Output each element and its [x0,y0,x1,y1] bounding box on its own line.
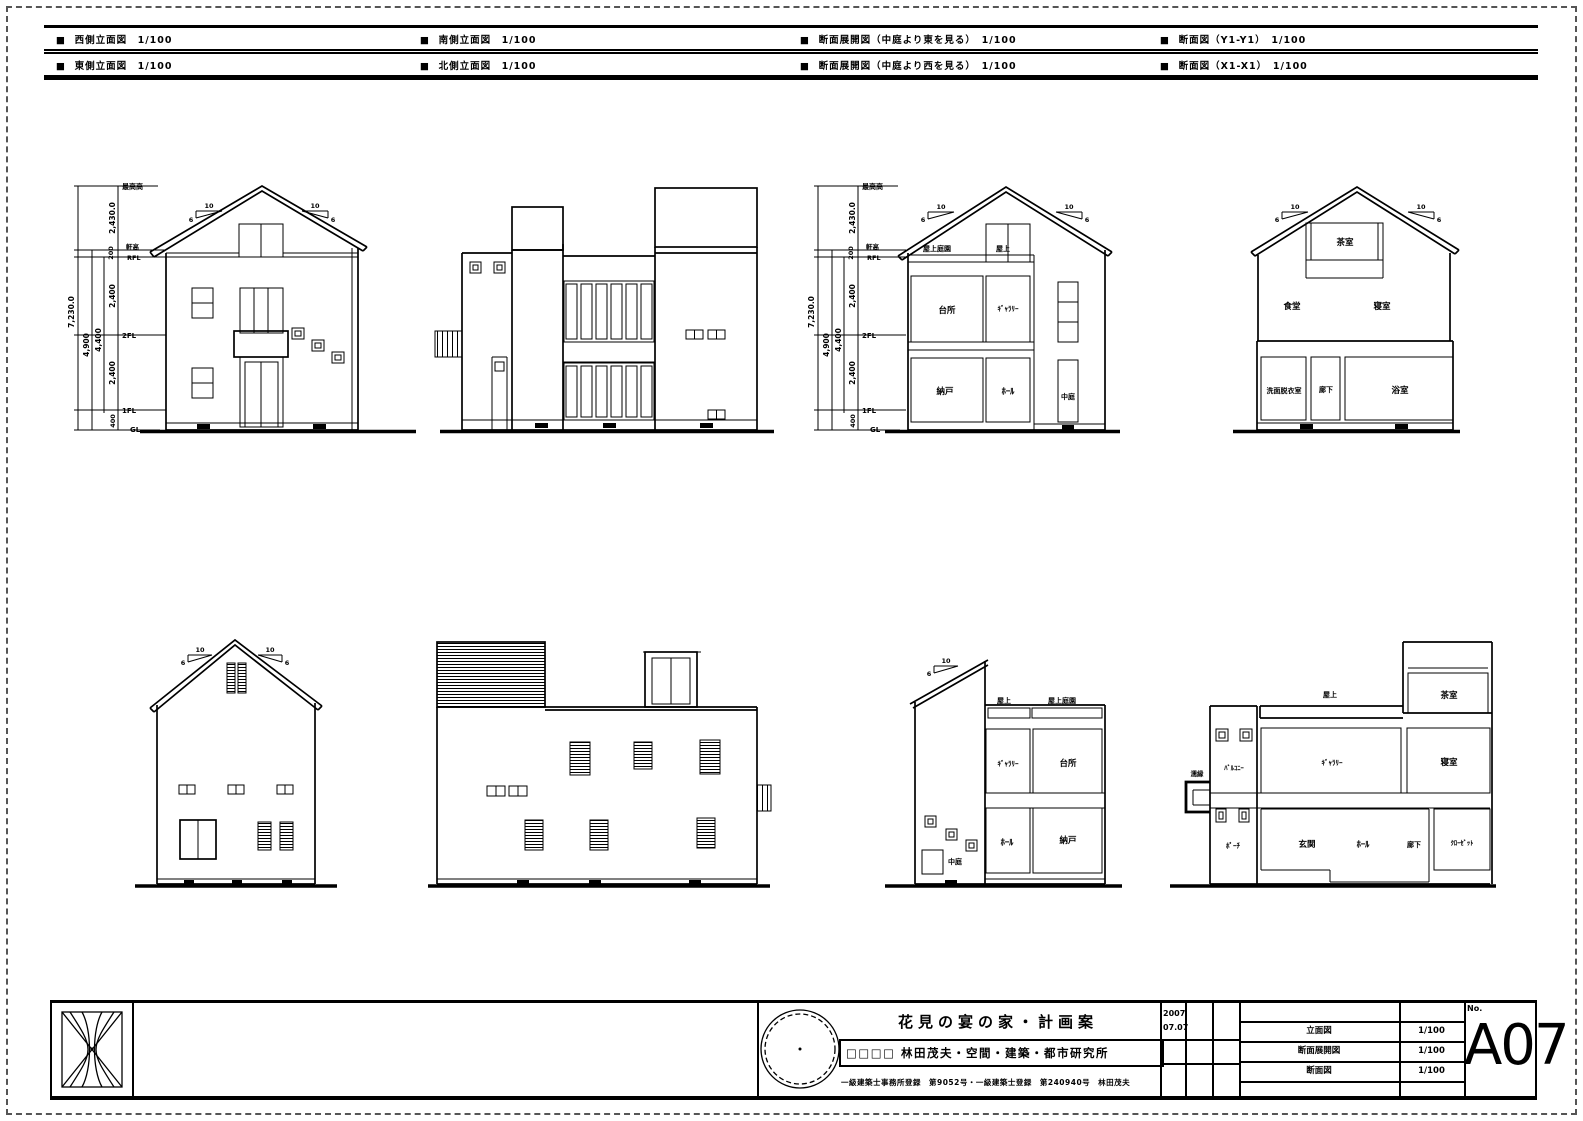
drawing-list-name: 断面展開図 [1239,1042,1399,1060]
dim-overall: 7,230.0 [67,296,76,328]
dim-seg-upper: 2,400 [108,284,117,308]
pitch-run: 10 [195,646,205,654]
dim-seg-eave: 200 [107,246,115,260]
room-label-dining: 食堂 [1283,301,1301,312]
seal-circle-icon [759,1008,841,1090]
room-label-roof: 屋上 [996,244,1010,253]
revision-grid-line [1160,1039,1239,1041]
room-label-courtyard: 中庭 [948,857,963,866]
room-label-gallery: ｷﾞｬﾗﾘｰ [998,304,1019,313]
header-label-section-dev-east: ■ 断面展開図（中庭より東を見る） 1/100 [800,32,1017,46]
pitch-rise: 6 [921,216,926,224]
room-label-tea-room: 茶室 [1439,690,1458,701]
section-west-details [922,666,1105,884]
pitch-rise: 6 [1085,216,1090,224]
dim-seg-upper: 2,400 [848,284,857,308]
room-label-roof: 屋上 [1323,690,1337,699]
date-month-day: 07.07 [1163,1023,1188,1032]
dim-seg-lower: 2,400 [848,361,857,385]
room-label-hall: ﾎｰﾙ [1001,838,1015,848]
date-year: 2007 [1163,1009,1185,1018]
sheet-number: A07 [1464,1013,1535,1078]
pitch-run: 10 [936,203,946,211]
titleblock-divider [132,1003,134,1096]
room-label-kitchen: 台所 [1059,758,1077,769]
room-label-roof-garden: 屋上庭園 [923,244,951,253]
room-label-roof-garden: 屋上庭園 [1048,696,1076,705]
dim-seg-top: 2,430.0 [848,202,857,234]
dimension-stack-section [814,186,906,430]
room-label-hall: ﾎｰﾙ [1002,387,1016,397]
level-1fl: 1FL [862,407,877,415]
house-west-elevation: 10 6 10 6 [140,186,416,432]
pitch-rise: 6 [189,216,194,224]
header-label-section-dev-west: ■ 断面展開図（中庭より西を見る） 1/100 [800,58,1017,72]
room-label-corridor: 廊下 [1407,840,1421,849]
level-gl: GL [870,426,881,434]
room-label-hall: ﾎｰﾙ [1357,840,1371,850]
pitch-run: 10 [265,646,275,654]
drawing-east-elevation: 10 6 10 6 [130,630,360,894]
revision-grid-line [1160,1063,1239,1065]
drawing-south-elevation [420,180,780,442]
drawing-list-scale: 1/100 [1399,1042,1464,1060]
level-max-height: 最高高 [122,182,143,191]
drawing-list-scale: 1/100 [1399,1062,1464,1080]
header-band-2: ■ 東側立面図 1/100 ■ 北側立面図 1/100 ■ 断面展開図（中庭より… [44,52,1538,80]
revision-grid-line [1160,1003,1162,1096]
header-label-east-elevation: ■ 東側立面図 1/100 [56,58,173,72]
header-label-south-elevation: ■ 南側立面図 1/100 [420,32,537,46]
drawing-sheet: ■ 西側立面図 1/100 ■ 南側立面図 1/100 ■ 断面展開図（中庭より… [0,0,1583,1121]
pitch-rise: 6 [285,659,290,667]
dim-inner: 4,400 [834,328,843,352]
dim-seg-lower: 2,400 [108,361,117,385]
room-label-tea-room: 茶室 [1335,237,1354,248]
level-rfl: RFL [127,254,141,262]
drawing-section-dev-east: 7,230.0 4,900 4,400 2,430.0 200 2,400 2,… [795,170,1127,445]
dim-seg-eave: 200 [847,246,855,260]
room-label-gallery: ｷﾞｬﾗﾘｰ [998,759,1019,768]
room-label-roof: 屋上 [997,696,1011,705]
cantilever-bracket [1186,782,1210,812]
drawing-list-name: 断面図 [1239,1062,1399,1080]
room-label-porch: ﾎﾟｰﾁ [1226,841,1241,850]
room-label-veranda: 濡縁 [1191,769,1205,778]
dim-seg-top: 2,430.0 [108,202,117,234]
room-label-washroom: 洗面脱衣室 [1267,386,1302,395]
south-elevation-details [435,188,757,430]
revision-grid-line [1185,1003,1187,1096]
east-elevation-outline [150,640,322,884]
level-2fl: 2FL [122,332,137,340]
revision-grid-line [1212,1003,1214,1096]
south-elevation-outline [462,244,757,430]
pitch-run: 10 [1290,203,1300,211]
level-1fl: 1FL [122,407,137,415]
room-label-balcony: ﾊﾞﾙｺﾆｰ [1223,763,1244,772]
header-band-1: ■ 西側立面図 1/100 ■ 南側立面図 1/100 ■ 断面展開図（中庭より… [44,25,1538,51]
drawing-section-x1: 屋上 茶室 ｷﾞｬﾗﾘｰ 寝室 ﾊﾞﾙｺﾆｰ 濡縁 ﾎﾟｰﾁ 玄関 ﾎｰﾙ 廊下… [1160,622,1502,894]
level-eave: 軒高 [126,242,140,251]
pitch-rise: 6 [181,659,186,667]
drawing-list-name: 立面図 [1239,1022,1399,1040]
pitch-rise: 6 [1275,216,1280,224]
pitch-run: 10 [204,202,214,210]
firm-logo-icon [60,1010,124,1089]
license-line: 一級建築士事務所登録 第9052号・一級建築士登録 第240940号 林田茂夫 [841,1077,1171,1088]
room-label-bedroom: 寝室 [1372,301,1391,312]
room-label-storage: 納戸 [936,386,954,397]
drawing-north-elevation [420,630,780,894]
drawing-west-elevation: 7,230.0 4,900 4,400 2,430.0 200 2,400 2,… [60,165,422,447]
level-max-height: 最高高 [862,182,883,191]
room-label-gallery: ｷﾞｬﾗﾘｰ [1322,758,1343,767]
pitch-rise: 6 [1437,216,1442,224]
room-label-bath: 浴室 [1391,385,1409,396]
room-label-bedroom: 寝室 [1439,757,1458,768]
pitch-run: 10 [310,202,320,210]
level-rfl: RFL [867,254,881,262]
header-label-north-elevation: ■ 北側立面図 1/100 [420,58,537,72]
pitch-run: 10 [1416,203,1426,211]
drawing-section-dev-west: 10 6 屋上 屋上庭園 ｷﾞｬﾗﾘｰ 台所 ﾎｰﾙ 納戸 中庭 [875,640,1131,894]
firm-name: □□□□ 林田茂夫・空間・建築・都市研究所 [839,1039,1164,1067]
drawing-list-scale: 1/100 [1399,1022,1464,1040]
dim-to-eave: 4,900 [822,333,831,357]
drawing-section-y1: 10 6 10 6 茶室 食堂 寝室 洗面脱衣室 廊下 浴室 [1215,175,1465,443]
dimension-stack-west [74,186,166,430]
room-label-storage: 納戸 [1059,835,1077,846]
dim-seg-base: 400 [849,414,857,428]
pitch-run: 10 [941,657,951,665]
dim-to-eave: 4,900 [82,333,91,357]
dim-inner: 4,400 [94,328,103,352]
header-label-west-elevation: ■ 西側立面図 1/100 [56,32,173,46]
room-label-courtyard: 中庭 [1061,392,1076,401]
pitch-rise: 6 [331,216,336,224]
room-label-closet: ｸﾛｰｾﾞｯﾄ [1451,838,1474,847]
pitch-run: 10 [1064,203,1074,211]
sheet-no-label: No. [1467,1004,1482,1013]
dim-overall: 7,230.0 [807,296,816,328]
section-east-structure: 10 6 10 6 屋上庭園 屋上 台所 ｷﾞｬﾗﾘｰ 納戸 ﾎｰﾙ 中庭 [885,187,1120,432]
level-2fl: 2FL [862,332,877,340]
room-label-kitchen: 台所 [938,305,956,316]
section-y1-rooms [1257,212,1453,429]
level-eave: 軒高 [866,242,880,251]
project-title: 花見の宴の家・計画案 [839,1011,1157,1032]
title-block: 花見の宴の家・計画案 □□□□ 林田茂夫・空間・建築・都市研究所 一級建築士事務… [50,1000,1537,1100]
room-label-corridor: 廊下 [1319,385,1333,394]
level-gl: GL [130,426,141,434]
room-label-entrance: 玄関 [1298,839,1315,850]
header-label-section-x1: ■ 断面図（X1-X1） 1/100 [1160,58,1308,72]
drawing-list-line [1239,1081,1464,1083]
pitch-rise: 6 [927,670,932,678]
header-label-section-y1: ■ 断面図（Y1-Y1） 1/100 [1160,32,1306,46]
dim-seg-base: 400 [109,414,117,428]
